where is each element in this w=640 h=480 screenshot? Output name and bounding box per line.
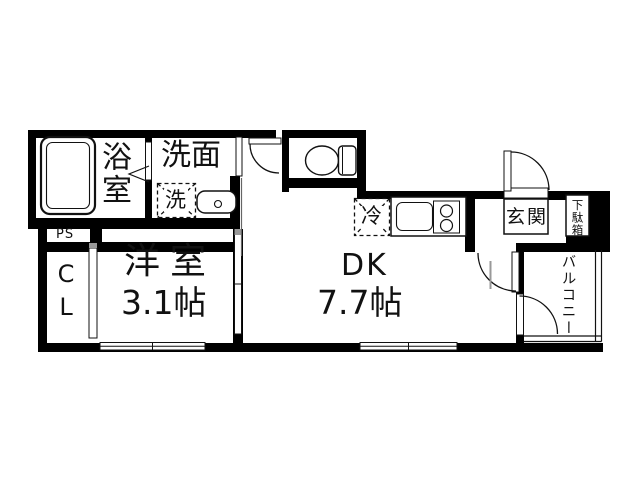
wall-segment	[516, 243, 602, 252]
window-dk	[360, 343, 457, 351]
sliding-door-cap	[235, 229, 242, 235]
wall-segment	[282, 178, 366, 188]
toilet-bowl	[306, 146, 339, 175]
washing-machine-label: 洗	[165, 190, 186, 211]
room-size-western: 3.1帖	[121, 286, 206, 319]
wall-segment	[357, 130, 366, 198]
stove-burner	[441, 220, 453, 232]
stove-burner	[441, 205, 453, 217]
kitchen-sink	[397, 203, 433, 231]
washroom-partition	[236, 137, 242, 176]
window-western-room	[100, 343, 205, 351]
wall-segment	[516, 334, 524, 347]
room-size-dk: 7.7帖	[317, 286, 402, 319]
balcony-label: バルコニー	[560, 254, 575, 337]
bathtub-inner	[47, 143, 90, 209]
floor-plan-drawing	[0, 0, 640, 480]
entrance-label: 玄関	[506, 208, 548, 227]
closet-label: CL	[54, 260, 78, 326]
wall-segment	[282, 130, 366, 138]
closet-door-cap	[89, 243, 97, 248]
pipe-space-label: PS	[56, 228, 74, 241]
refrigerator-label: 冷	[361, 206, 382, 227]
balcony-door-leaf	[517, 294, 524, 335]
toilet-tank	[339, 146, 357, 175]
room-label-western: 洋室	[124, 244, 216, 280]
wall-segment	[28, 130, 36, 229]
closet-door	[89, 248, 97, 338]
balcony-door-arc	[520, 296, 558, 334]
hall-dk-door-arc	[478, 253, 516, 291]
entrance-door-arc	[511, 152, 549, 190]
room-label-bathroom: 浴室	[98, 141, 128, 207]
toilet-door-arc	[250, 144, 279, 173]
hall-dk-door-leaf	[512, 252, 519, 292]
bathroom-door	[146, 142, 152, 180]
wall-segment	[38, 229, 47, 352]
room-label-washroom: 洗面	[161, 141, 221, 171]
room-label-dk: DK	[341, 251, 388, 281]
toilet-door-leaf	[249, 138, 281, 144]
entrance-door-leaf	[504, 151, 511, 191]
washroom-sink-drain	[215, 201, 222, 208]
floor-plan: 浴室 洗面 洗 PS CL 洋室 3.1帖 DK 7.7帖 冷 玄関 下駄箱 バ…	[0, 0, 640, 480]
shoe-cabinet-label: 下駄箱	[571, 199, 583, 237]
